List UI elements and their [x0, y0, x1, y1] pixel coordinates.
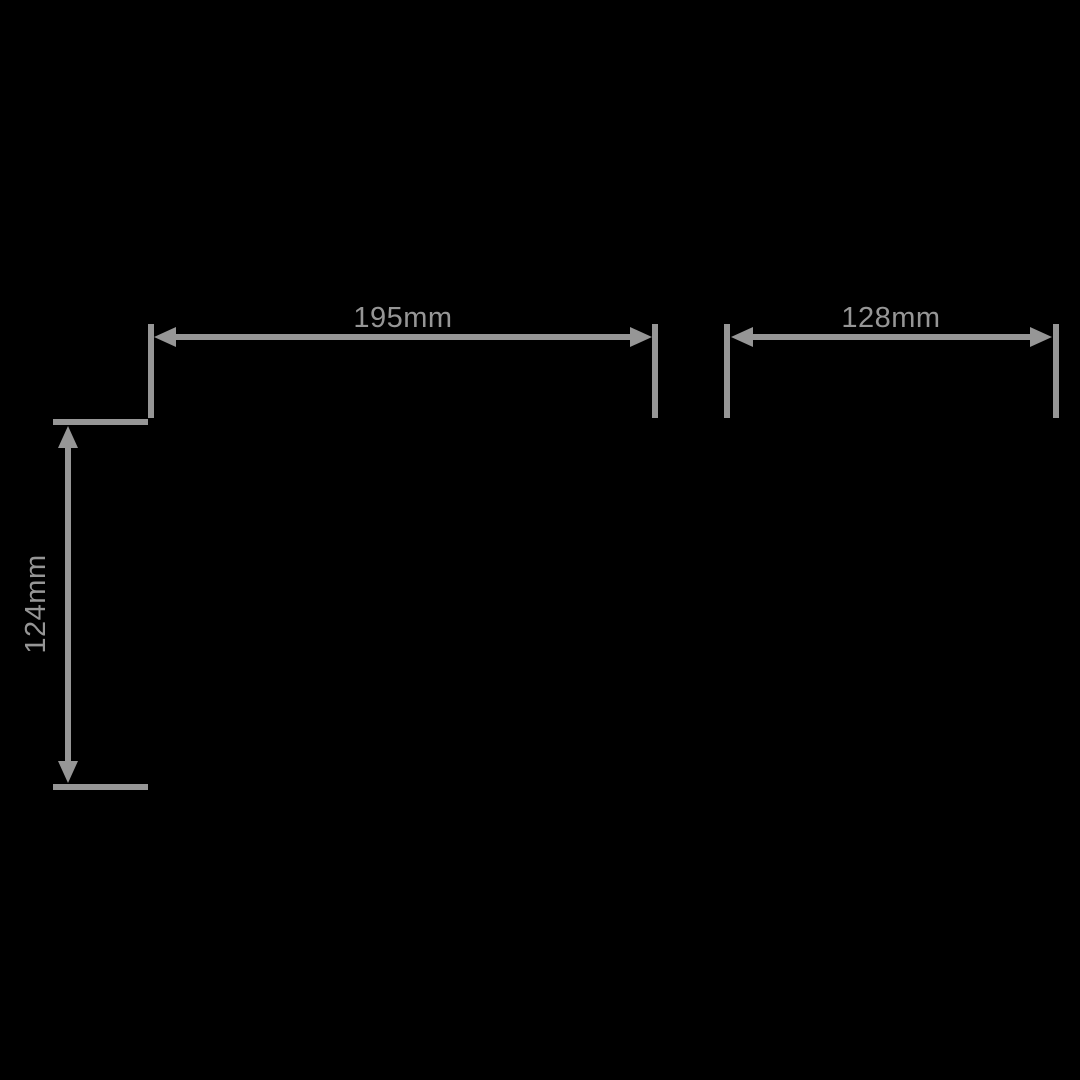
dimension-top-right-width: 128mm	[727, 302, 1056, 418]
arrowhead-down-icon	[58, 761, 78, 783]
dimension-top-left-width: 195mm	[151, 302, 655, 418]
dimension-drawing-canvas: 195mm 128mm 124mm	[0, 0, 1080, 1080]
arrowhead-left-icon	[154, 327, 176, 347]
dimension-drawing: 195mm 128mm 124mm	[0, 0, 1080, 1080]
dimension-label: 128mm	[841, 302, 940, 334]
dimension-left-height: 124mm	[20, 422, 148, 787]
arrowhead-left-icon	[731, 327, 753, 347]
arrowhead-right-icon	[1030, 327, 1052, 347]
arrowhead-right-icon	[630, 327, 652, 347]
dimension-label: 195mm	[353, 302, 452, 334]
dimension-label: 124mm	[20, 554, 52, 653]
arrowhead-up-icon	[58, 426, 78, 448]
